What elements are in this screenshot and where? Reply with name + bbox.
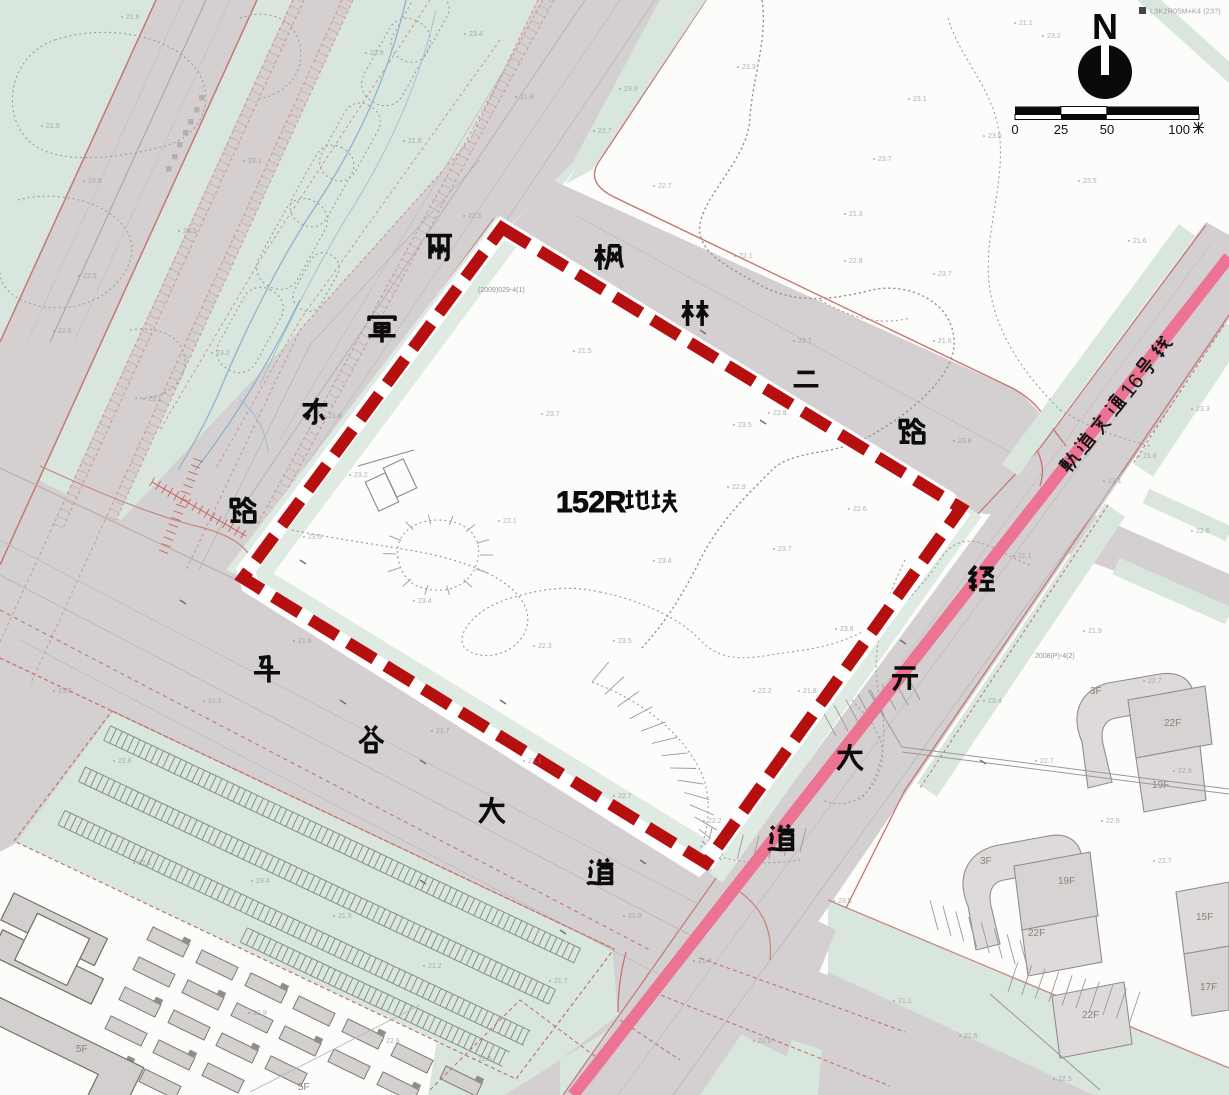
- svg-text:22.9: 22.9: [386, 1038, 400, 1045]
- svg-text:22.7: 22.7: [1040, 758, 1054, 765]
- svg-text:22.5: 22.5: [758, 1038, 772, 1045]
- svg-text:23.4: 23.4: [658, 558, 672, 565]
- svg-text:22.6: 22.6: [118, 758, 132, 765]
- svg-text:23.5: 23.5: [618, 638, 632, 645]
- svg-text:15F: 15F: [1196, 912, 1213, 923]
- svg-text:152R: 152R: [556, 486, 627, 519]
- svg-text:23.8: 23.8: [88, 178, 102, 185]
- svg-text:22.6: 22.6: [58, 328, 72, 335]
- svg-text:21.5: 21.5: [578, 348, 592, 355]
- svg-text:23.5: 23.5: [58, 688, 72, 695]
- svg-text:21.3: 21.3: [849, 211, 863, 218]
- svg-text:25: 25: [1054, 122, 1068, 137]
- svg-text:23.2: 23.2: [1047, 33, 1061, 40]
- svg-text:23.4: 23.4: [256, 878, 270, 885]
- svg-text:21.7: 21.7: [436, 728, 450, 735]
- svg-text:3F: 3F: [1090, 686, 1102, 697]
- svg-text:23.7: 23.7: [938, 271, 952, 278]
- svg-text:21.5: 21.5: [338, 913, 352, 920]
- svg-text:21.6: 21.6: [1133, 238, 1147, 245]
- svg-text:23.5: 23.5: [1083, 178, 1097, 185]
- svg-text:22.2: 22.2: [708, 818, 722, 825]
- svg-text:21.8: 21.8: [1143, 453, 1157, 460]
- svg-text:21.2: 21.2: [428, 963, 442, 970]
- svg-text:22.1: 22.1: [739, 253, 753, 260]
- svg-text:23.5: 23.5: [738, 422, 752, 429]
- svg-text:22F: 22F: [1082, 1010, 1099, 1021]
- svg-text:21.1: 21.1: [1018, 553, 1032, 560]
- svg-text:23.7: 23.7: [878, 156, 892, 163]
- svg-text:21.1: 21.1: [898, 998, 912, 1005]
- svg-text:23.4: 23.4: [988, 698, 1002, 705]
- svg-text:22.9: 22.9: [1106, 818, 1120, 825]
- svg-text:22.3: 22.3: [538, 643, 552, 650]
- svg-text:21.8: 21.8: [520, 94, 534, 101]
- svg-text:22.7: 22.7: [1148, 678, 1162, 685]
- svg-text:23.1: 23.1: [148, 396, 162, 403]
- svg-text:23.3: 23.3: [1196, 406, 1210, 413]
- svg-text:22.5: 22.5: [183, 228, 197, 235]
- svg-text:23.4: 23.4: [418, 598, 432, 605]
- svg-text:5F: 5F: [298, 1082, 310, 1093]
- svg-text:21.6: 21.6: [938, 338, 952, 345]
- svg-text:22.6: 22.6: [853, 506, 867, 513]
- svg-text:21.7: 21.7: [554, 978, 568, 985]
- svg-text:17F: 17F: [1200, 982, 1217, 993]
- svg-text:23.2: 23.2: [216, 350, 230, 357]
- svg-text:21.8: 21.8: [803, 688, 817, 695]
- svg-text:23.5: 23.5: [838, 898, 852, 905]
- svg-text:23.1: 23.1: [913, 96, 927, 103]
- svg-text:22.7: 22.7: [598, 128, 612, 135]
- svg-text:21.9: 21.9: [628, 913, 642, 920]
- svg-text:23.7: 23.7: [778, 546, 792, 553]
- svg-text:22.6: 22.6: [964, 1033, 978, 1040]
- svg-text:3F: 3F: [980, 856, 992, 867]
- svg-text:21.1: 21.1: [208, 698, 222, 705]
- svg-text:23.7: 23.7: [798, 338, 812, 345]
- svg-text:21.1: 21.1: [1108, 478, 1122, 485]
- svg-text:22.7: 22.7: [658, 183, 672, 190]
- svg-text:22.6: 22.6: [478, 1056, 492, 1063]
- svg-text:23.8: 23.8: [840, 626, 854, 633]
- svg-text:23.1: 23.1: [248, 158, 262, 165]
- svg-text:22.9: 22.9: [732, 484, 746, 491]
- svg-text:23.2: 23.2: [354, 472, 368, 479]
- svg-text:21.9: 21.9: [1088, 628, 1102, 635]
- svg-text:22.5: 22.5: [468, 213, 482, 220]
- svg-text:21.6: 21.6: [408, 138, 422, 145]
- svg-text:22.7: 22.7: [618, 793, 632, 800]
- svg-text:22F: 22F: [1164, 718, 1181, 729]
- svg-text:23.6: 23.6: [308, 534, 322, 541]
- svg-text:22.8: 22.8: [773, 410, 787, 417]
- svg-text:23.9: 23.9: [624, 86, 638, 93]
- svg-text:(2009)029-4(1): (2009)029-4(1): [478, 287, 525, 294]
- svg-text:0: 0: [1011, 122, 1018, 137]
- svg-text:23.8: 23.8: [370, 50, 384, 57]
- svg-text:22.2: 22.2: [758, 688, 772, 695]
- svg-text:21.6: 21.6: [298, 638, 312, 645]
- svg-text:21.9: 21.9: [46, 123, 60, 130]
- svg-text:100: 100: [1168, 122, 1190, 137]
- svg-text:22.1: 22.1: [138, 860, 152, 867]
- svg-text:22.8: 22.8: [849, 258, 863, 265]
- svg-text:22.7: 22.7: [1158, 858, 1172, 865]
- svg-text:21.6: 21.6: [126, 14, 140, 21]
- svg-text:L3K2R05M+K4 (23?): L3K2R05M+K4 (23?): [1150, 7, 1221, 16]
- svg-text:21.6: 21.6: [328, 413, 342, 420]
- svg-text:22.9: 22.9: [1178, 768, 1192, 775]
- svg-text:23.4: 23.4: [469, 31, 483, 38]
- svg-text:23.6: 23.6: [988, 133, 1002, 140]
- svg-text:23.8: 23.8: [958, 438, 972, 445]
- svg-text:21.1: 21.1: [1019, 20, 1033, 27]
- svg-text:22.1: 22.1: [503, 518, 517, 525]
- svg-text:21.1: 21.1: [528, 758, 542, 765]
- svg-text:N: N: [1092, 6, 1118, 47]
- svg-text:22F: 22F: [1028, 928, 1045, 939]
- svg-text:22.3: 22.3: [1058, 1076, 1072, 1083]
- svg-text:23.3: 23.3: [742, 64, 756, 71]
- svg-text:19F: 19F: [1058, 876, 1075, 887]
- svg-text:21.4: 21.4: [698, 958, 712, 965]
- svg-text:2008(P)-4(2): 2008(P)-4(2): [1035, 653, 1075, 660]
- svg-text:22.9: 22.9: [253, 1010, 267, 1017]
- svg-text:50: 50: [1100, 122, 1114, 137]
- svg-text:5F: 5F: [76, 1044, 88, 1055]
- svg-text:22.5: 22.5: [83, 273, 97, 280]
- svg-text:22.6: 22.6: [1196, 528, 1210, 535]
- svg-text:23.7: 23.7: [546, 411, 560, 418]
